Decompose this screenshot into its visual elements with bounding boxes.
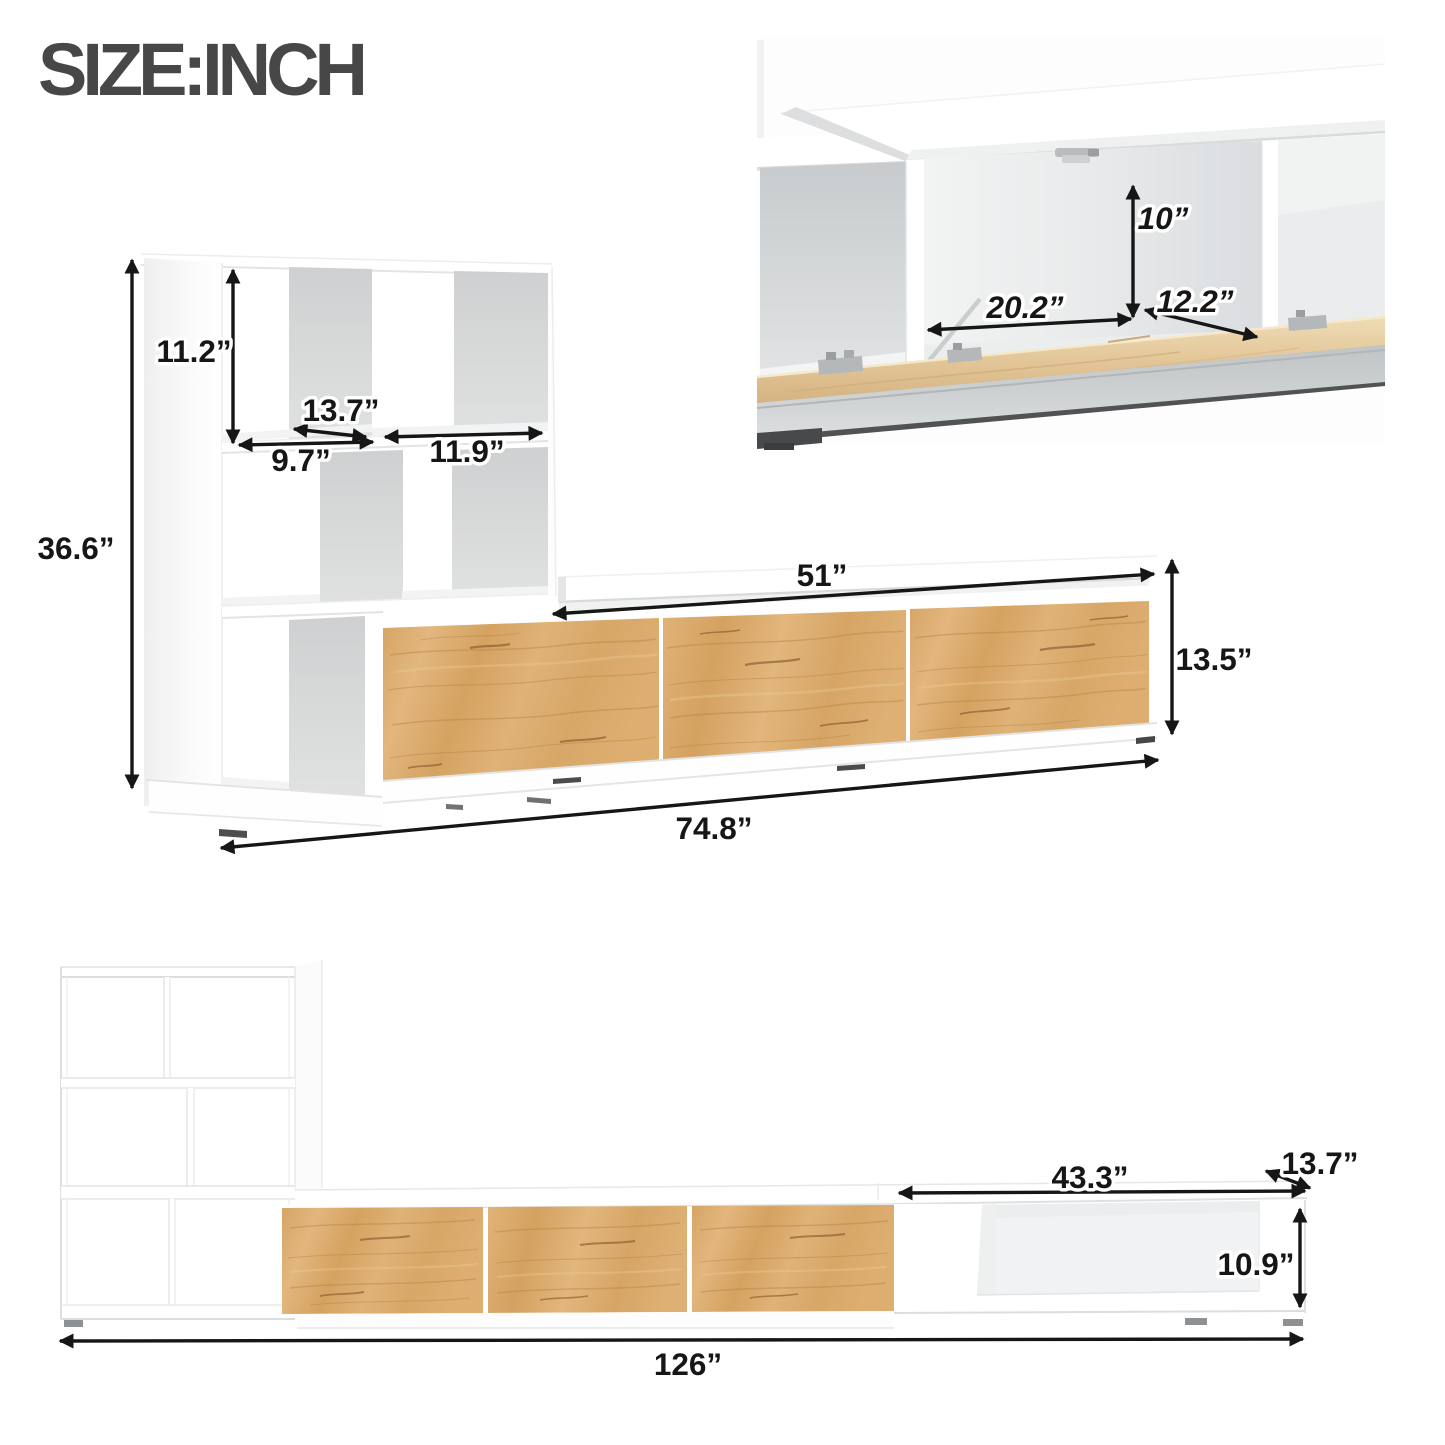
svg-text:12.2”: 12.2” — [1156, 283, 1233, 319]
svg-text:43.3”: 43.3” — [1051, 1159, 1128, 1195]
svg-text:13.7”: 13.7” — [1281, 1145, 1358, 1181]
svg-text:13.7”: 13.7” — [302, 392, 379, 428]
svg-text:10.9”: 10.9” — [1217, 1246, 1294, 1282]
svg-text:10”: 10” — [1138, 200, 1189, 236]
svg-text:51”: 51” — [797, 557, 848, 593]
svg-text:74.8”: 74.8” — [675, 810, 752, 846]
svg-text:11.2”: 11.2” — [156, 333, 231, 369]
svg-text:13.5”: 13.5” — [1175, 641, 1252, 677]
svg-text:126”: 126” — [654, 1346, 722, 1382]
svg-text:11.9”: 11.9” — [429, 433, 504, 469]
svg-text:20.2”: 20.2” — [985, 289, 1063, 325]
svg-text:36.6”: 36.6” — [37, 530, 114, 566]
svg-text:9.7”: 9.7” — [271, 442, 331, 478]
svg-text:SIZE:INCH: SIZE:INCH — [38, 28, 364, 111]
